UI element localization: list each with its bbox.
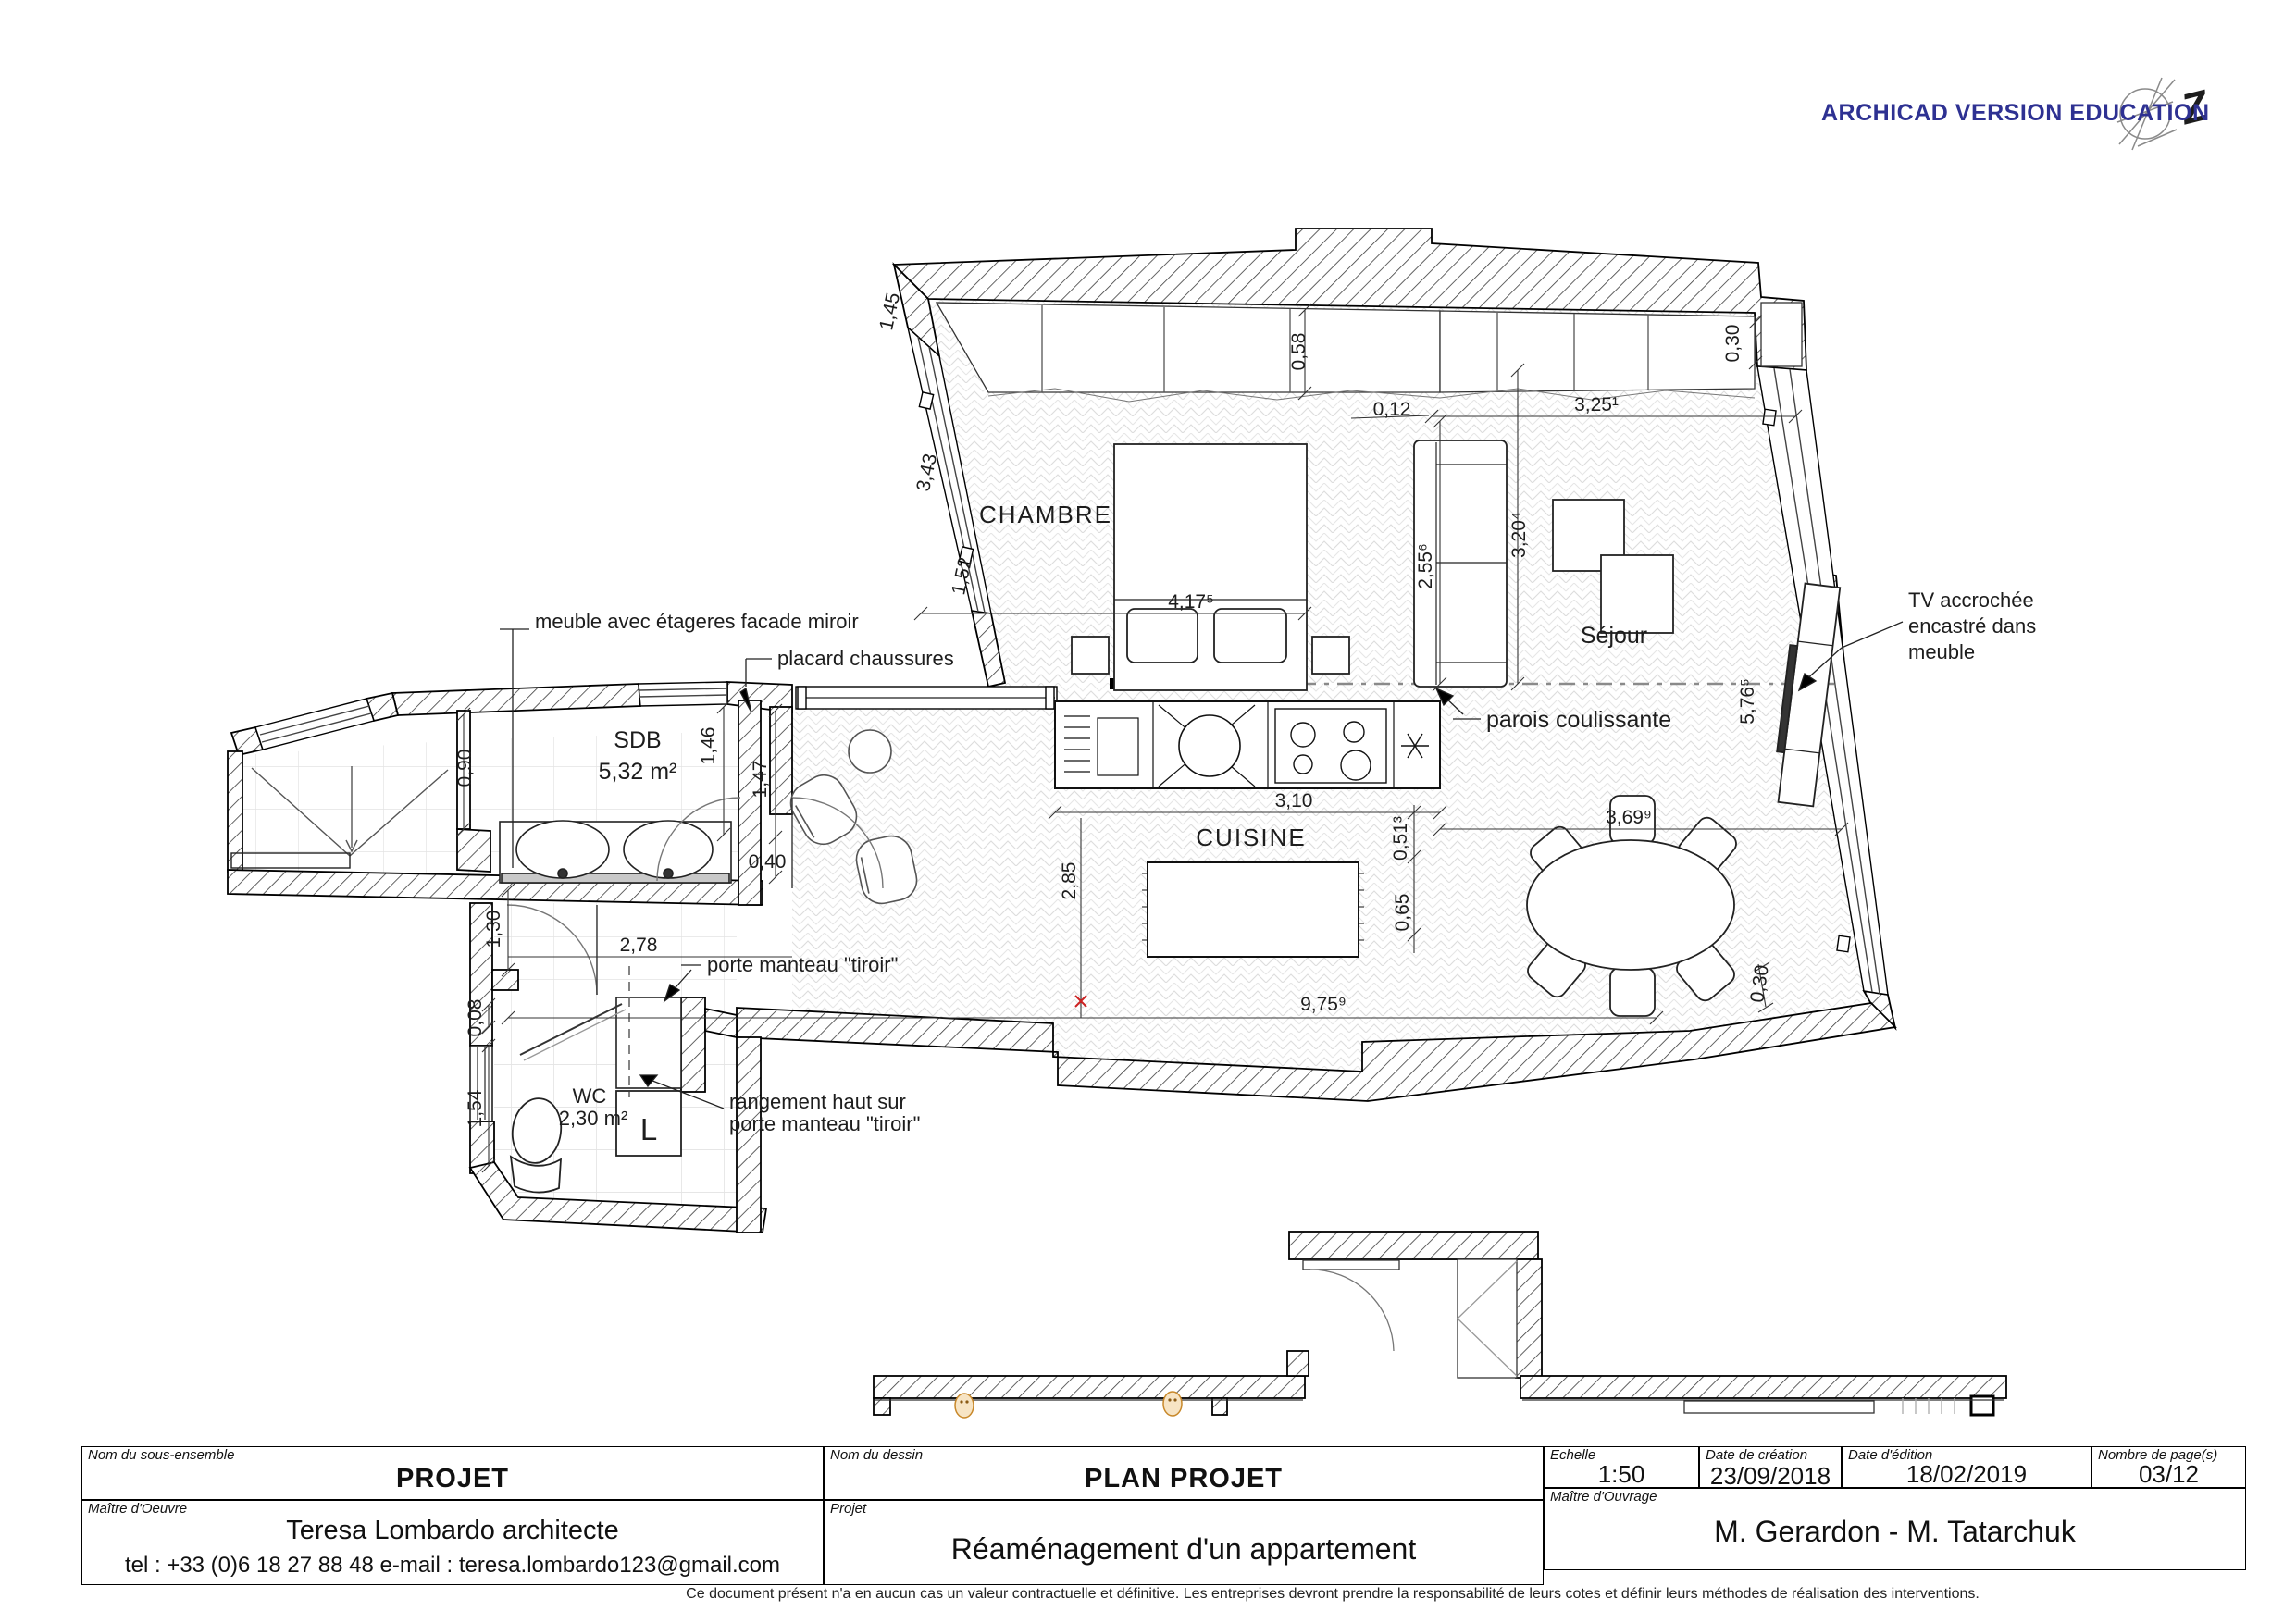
titleblock-cell-projet: Projet Réaménagement d'un appartement — [824, 1500, 1544, 1585]
annotation-meuble-miroir: meuble avec étageres facade miroir — [535, 610, 859, 633]
titleblock-cell-sous-ensemble: Nom du sous-ensemble PROJET — [81, 1446, 824, 1500]
floor-plan-canvas: CHAMBRE Séjour CUISINE SDB 5,32 m² WC 2,… — [0, 0, 2296, 1623]
titleblock-cell-date-edition: Date d'édition 18/02/2019 — [1842, 1446, 2091, 1488]
field-label: Date de création — [1706, 1447, 1807, 1463]
dim-2-55: 2,55⁶ — [1415, 543, 1436, 589]
room-label-sdb: SDB — [614, 727, 661, 753]
dim-2-85: 2,85 — [1059, 862, 1080, 900]
dim-0-30-top: 0,30 — [1722, 325, 1744, 363]
annotation-porte-manteau: porte manteau "tiroir" — [707, 953, 898, 976]
annotation-placard-chaussures: placard chaussures — [777, 647, 954, 670]
drawing-sheet: CHAMBRE Séjour CUISINE SDB 5,32 m² WC 2,… — [0, 0, 2296, 1623]
field-label: Nom du sous-ensemble — [88, 1447, 234, 1463]
dim-1-46: 1,46 — [698, 727, 719, 765]
field-value-date-creation: 23/09/2018 — [1700, 1462, 1841, 1491]
dim-0-90: 0,90 — [454, 750, 476, 787]
room-area-sdb: 5,32 m² — [599, 759, 677, 785]
field-label: Nom du dessin — [830, 1447, 923, 1463]
room-label-sejour: Séjour — [1581, 623, 1647, 649]
dim-2-78: 2,78 — [620, 935, 658, 956]
dim-0-12: 0,12 — [1373, 399, 1411, 420]
dim-9-75: 9,75⁹ — [1300, 994, 1347, 1015]
field-value-plan-projet: PLAN PROJET — [825, 1464, 1543, 1494]
archicad-watermark: ARCHICAD VERSION EDUCATION — [1821, 100, 2210, 127]
client-names: M. Gerardon - M. Tatarchuk — [1545, 1515, 2245, 1549]
field-value-projet: PROJET — [82, 1464, 823, 1494]
field-value-echelle: 1:50 — [1545, 1460, 1698, 1489]
titleblock-cell-dessin: Nom du dessin PLAN PROJET — [824, 1446, 1544, 1500]
annotation-tv-2: encastré dans — [1908, 614, 2036, 638]
dim-4-17: 4,17⁵ — [1168, 591, 1214, 613]
dim-1-47: 1,47 — [750, 761, 771, 799]
sdb-vanity — [500, 821, 731, 883]
dim-3-20: 3,20⁴ — [1508, 512, 1530, 558]
dim-5-76: 5,76⁵ — [1737, 678, 1758, 725]
annotation-parois-coulissante: parois coulissante — [1486, 707, 1671, 733]
dim-1-30: 1,30 — [483, 911, 504, 948]
dim-0-40: 0,40 — [749, 851, 787, 873]
dim-0-65: 0,65 — [1392, 894, 1413, 932]
titleblock-cell-maitre-oeuvre: Maître d'Oeuvre Teresa Lombardo architec… — [81, 1500, 824, 1585]
dim-0-58: 0,58 — [1288, 333, 1309, 371]
dim-3-25: 3,25¹ — [1574, 394, 1619, 415]
architect-name: Teresa Lombardo architecte — [82, 1516, 823, 1546]
titleblock-cell-pages: Nombre de page(s) 03/12 — [2091, 1446, 2246, 1488]
field-label: Maître d'Oeuvre — [88, 1501, 187, 1517]
dim-1-45: 1,45 — [875, 291, 904, 332]
field-value-date-edition: 18/02/2019 — [1843, 1460, 2091, 1489]
kitchen-counter — [1055, 701, 1440, 788]
annotation-tv-3: meuble — [1908, 640, 1975, 663]
annotation-rangement-2: porte manteau "tiroir" — [729, 1112, 920, 1135]
lower-plan-fragment — [874, 1232, 2006, 1418]
titleblock-cell-echelle: Echelle 1:50 — [1544, 1446, 1699, 1488]
dim-3-43: 3,43 — [912, 452, 941, 493]
dim-0-08: 0,08 — [465, 999, 486, 1037]
disclaimer-text: Ce document présent n'a en aucun cas un … — [648, 1586, 2017, 1603]
room-label-cuisine: CUISINE — [1196, 824, 1306, 851]
field-label: Projet — [830, 1501, 866, 1517]
titleblock-cell-date-creation: Date de création 23/09/2018 — [1699, 1446, 1842, 1488]
annotation-tv-1: TV accrochée — [1908, 588, 2034, 612]
field-label: Maître d'Ouvrage — [1550, 1489, 1657, 1505]
architect-contact: tel : +33 (0)6 18 27 88 48 e-mail : tere… — [82, 1553, 823, 1579]
room-label-wc: WC — [573, 1084, 607, 1108]
dim-1-54: 1,54 — [465, 1089, 486, 1127]
project-title: Réaménagement d'un appartement — [825, 1532, 1543, 1567]
dim-3-69: 3,69⁹ — [1606, 807, 1652, 828]
room-area-wc: 2,30 m² — [559, 1107, 628, 1130]
annotation-rangement-1: rangement haut sur — [729, 1090, 906, 1113]
kitchen-island — [1142, 862, 1364, 957]
appliance-l-label: L — [640, 1112, 657, 1146]
wardrobes — [937, 303, 1802, 402]
dim-3-10: 3,10 — [1275, 790, 1313, 811]
dim-0-51: 0,51³ — [1390, 816, 1411, 861]
room-label-chambre: CHAMBRE — [979, 501, 1112, 528]
field-value-pages: 03/12 — [2092, 1460, 2245, 1489]
titleblock-cell-maitre-ouvrage: Maître d'Ouvrage M. Gerardon - M. Tatarc… — [1544, 1488, 2246, 1570]
